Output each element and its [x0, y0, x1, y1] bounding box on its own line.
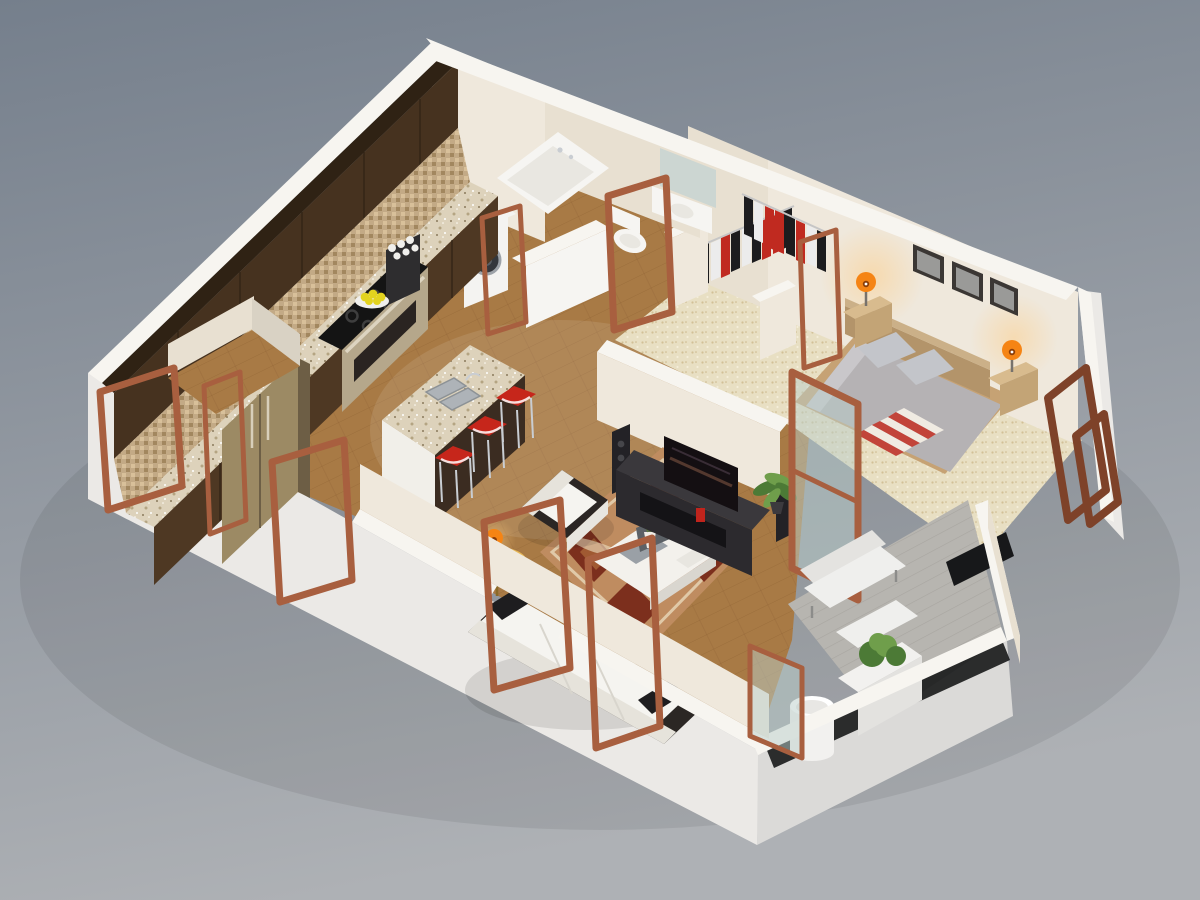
red-media-item: [696, 508, 705, 522]
tub-faucet: [557, 147, 562, 152]
floorplan-screenshot: [0, 0, 1200, 900]
tub-faucet: [569, 155, 573, 159]
balcony-door-frame: [750, 646, 802, 758]
apartment-3d-render: [0, 0, 1200, 900]
